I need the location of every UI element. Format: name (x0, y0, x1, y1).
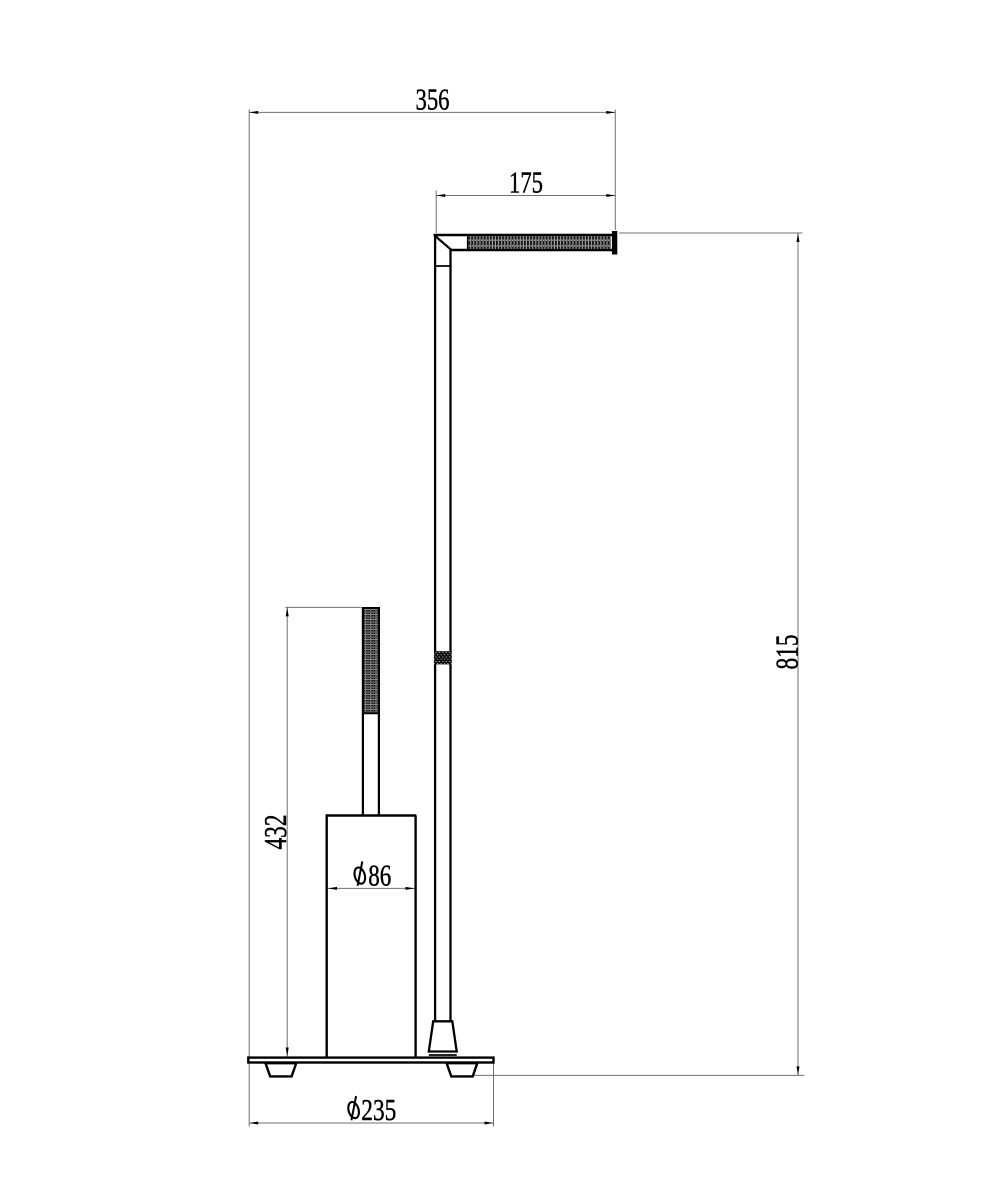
svg-text:175: 175 (509, 165, 543, 200)
svg-text:432: 432 (257, 815, 293, 850)
svg-text:86: 86 (368, 857, 391, 892)
svg-text:356: 356 (416, 82, 450, 117)
svg-text:815: 815 (769, 635, 805, 670)
svg-text:235: 235 (361, 1092, 396, 1127)
